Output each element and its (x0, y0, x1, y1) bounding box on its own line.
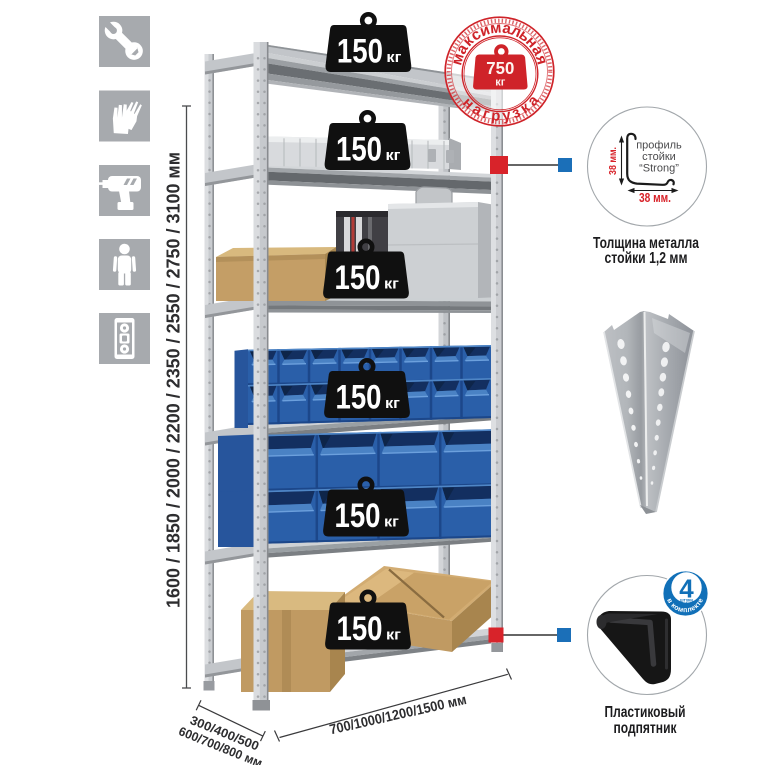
svg-text:“Strong”: “Strong” (639, 163, 679, 175)
svg-text:150: 150 (337, 33, 383, 71)
svg-text:700/1000/1200/1500 мм: 700/1000/1200/1500 мм (328, 691, 468, 737)
svg-text:профиль: профиль (636, 140, 682, 152)
svg-text:150: 150 (335, 497, 381, 535)
svg-text:150: 150 (335, 259, 381, 297)
svg-text:1600 / 1850 / 2000 / 2200 / 23: 1600 / 1850 / 2000 / 2200 / 2350 / 2550 … (164, 152, 184, 608)
svg-text:стойки 1,2 мм: стойки 1,2 мм (605, 250, 688, 267)
svg-text:кг: кг (384, 276, 399, 293)
svg-text:штуки: штуки (680, 598, 693, 603)
svg-text:кг: кг (385, 395, 400, 412)
svg-text:кг: кг (386, 627, 401, 644)
svg-text:Пластиковый: Пластиковый (605, 704, 686, 721)
svg-text:кг: кг (384, 514, 399, 531)
svg-text:150: 150 (336, 131, 382, 169)
svg-text:кг: кг (386, 49, 401, 66)
svg-text:стойки: стойки (642, 151, 676, 163)
svg-text:р: р (490, 107, 501, 125)
svg-text:кг: кг (495, 77, 506, 89)
svg-text:кг: кг (386, 147, 401, 164)
svg-text:подпятник: подпятник (614, 720, 677, 737)
svg-text:м: м (489, 19, 502, 37)
svg-text:38 мм.: 38 мм. (607, 147, 619, 175)
svg-text:150: 150 (336, 379, 382, 417)
svg-text:750: 750 (486, 58, 514, 78)
svg-text:150: 150 (337, 610, 383, 648)
svg-text:38 мм.: 38 мм. (639, 191, 671, 205)
